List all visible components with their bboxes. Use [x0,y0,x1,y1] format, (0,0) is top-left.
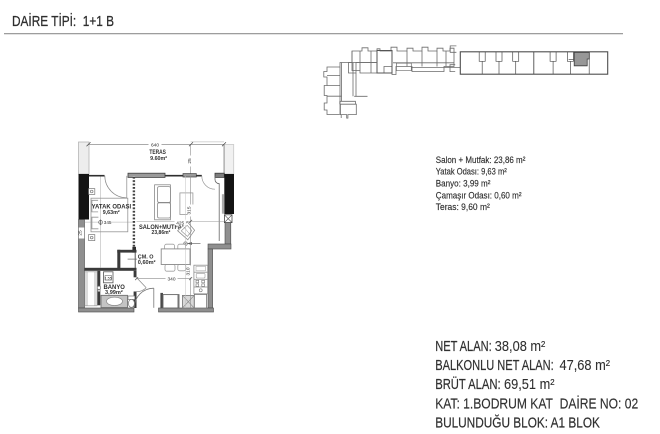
svg-text:23,86m²: 23,86m² [152,230,171,236]
svg-text:9,63m²: 9,63m² [103,210,120,216]
svg-text:0,60m²: 0,60m² [138,260,156,266]
svg-text:640: 640 [151,143,159,149]
svg-text:Salon + Mutfak: 23,86 m²: Salon + Mutfak: 23,86 m² [436,155,526,165]
svg-text:BRÜT ALAN:: BRÜT ALAN: [435,375,500,393]
svg-text:25: 25 [187,158,193,164]
svg-text:315: 315 [187,206,193,214]
svg-text:Yatak Odası: 9,63 m²: Yatak Odası: 9,63 m² [436,167,507,177]
svg-text:BALKONLU NET ALAN:: BALKONLU NET ALAN: [435,358,554,374]
svg-text:KAT: 1.BODRUM KAT DAİRE NO: 0: KAT: 1.BODRUM KAT DAİRE NO: 02 [435,394,638,412]
svg-text:Banyo: 3,99 m²: Banyo: 3,99 m² [436,179,491,189]
svg-text:1.55: 1.55 [105,276,112,280]
svg-text:NET ALAN:: NET ALAN: [435,339,492,355]
svg-text:47,68 m²: 47,68 m² [560,358,611,374]
svg-text:340: 340 [167,277,175,283]
svg-text:25: 25 [78,230,84,236]
svg-text:BULUNDUĞU BLOK: A1 BLOK: BULUNDUĞU BLOK: A1 BLOK [435,415,600,432]
svg-text:38,08 m²: 38,08 m² [495,339,546,355]
svg-text:Çamaşır Odası: 0,60 m²: Çamaşır Odası: 0,60 m² [436,190,522,200]
svg-text:425: 425 [176,220,184,226]
svg-text:69,51 m²: 69,51 m² [504,377,555,393]
svg-text:Teras: 9,60 m²: Teras: 9,60 m² [436,202,490,212]
svg-text:9.60m²: 9.60m² [150,155,167,162]
svg-text:345: 345 [104,220,112,225]
svg-text:310: 310 [186,267,192,275]
svg-text:DAİRE TİPİ: 1+1 B: DAİRE TİPİ: 1+1 B [12,12,114,30]
